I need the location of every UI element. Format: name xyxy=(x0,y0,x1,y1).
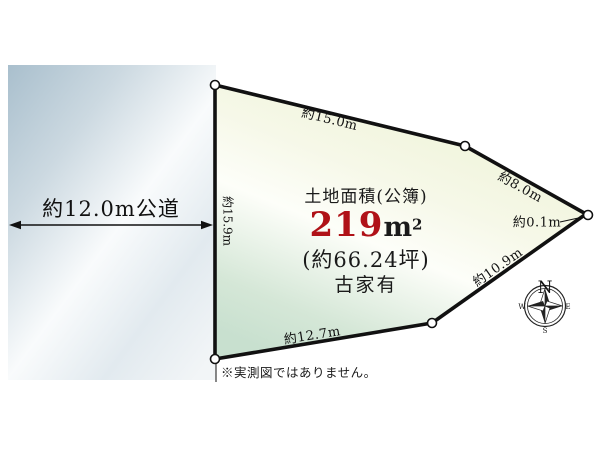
frontage-length-label: 約15.9m xyxy=(220,196,237,246)
road-width-label: 約12.0m公道 xyxy=(42,193,180,223)
area-unit: m xyxy=(383,212,412,243)
vertex-marker xyxy=(584,211,593,220)
vertex-marker xyxy=(211,81,220,90)
land-plot-diagram: N E W S 約12.0m公道 約15.9m 約15.0m 約8.0m 約0.… xyxy=(0,0,600,450)
vertex-marker xyxy=(461,142,470,151)
vertex-marker xyxy=(428,319,437,328)
area-info-block: 土地面積(公簿) 219m2 (約66.24坪) 古家有 xyxy=(302,186,430,297)
building-status: 古家有 xyxy=(302,273,430,297)
area-exponent: 2 xyxy=(412,216,422,234)
edge-length-right-corner: 約0.1m xyxy=(513,212,562,231)
area-number: 219 xyxy=(309,205,383,245)
compass-east-label: E xyxy=(565,303,570,311)
diagram-shapes: N E W S xyxy=(0,0,600,450)
compass-south-label: S xyxy=(543,327,548,335)
compass-west-label: W xyxy=(518,303,526,311)
compass-rose-icon: N E W S xyxy=(518,278,570,335)
footnote: ※実測図ではありません。 xyxy=(221,362,377,381)
vertex-marker xyxy=(211,355,220,364)
area-tsubo: (約66.24坪) xyxy=(302,248,430,273)
area-value: 219m2 xyxy=(302,208,430,248)
compass-north-label: N xyxy=(538,278,553,298)
